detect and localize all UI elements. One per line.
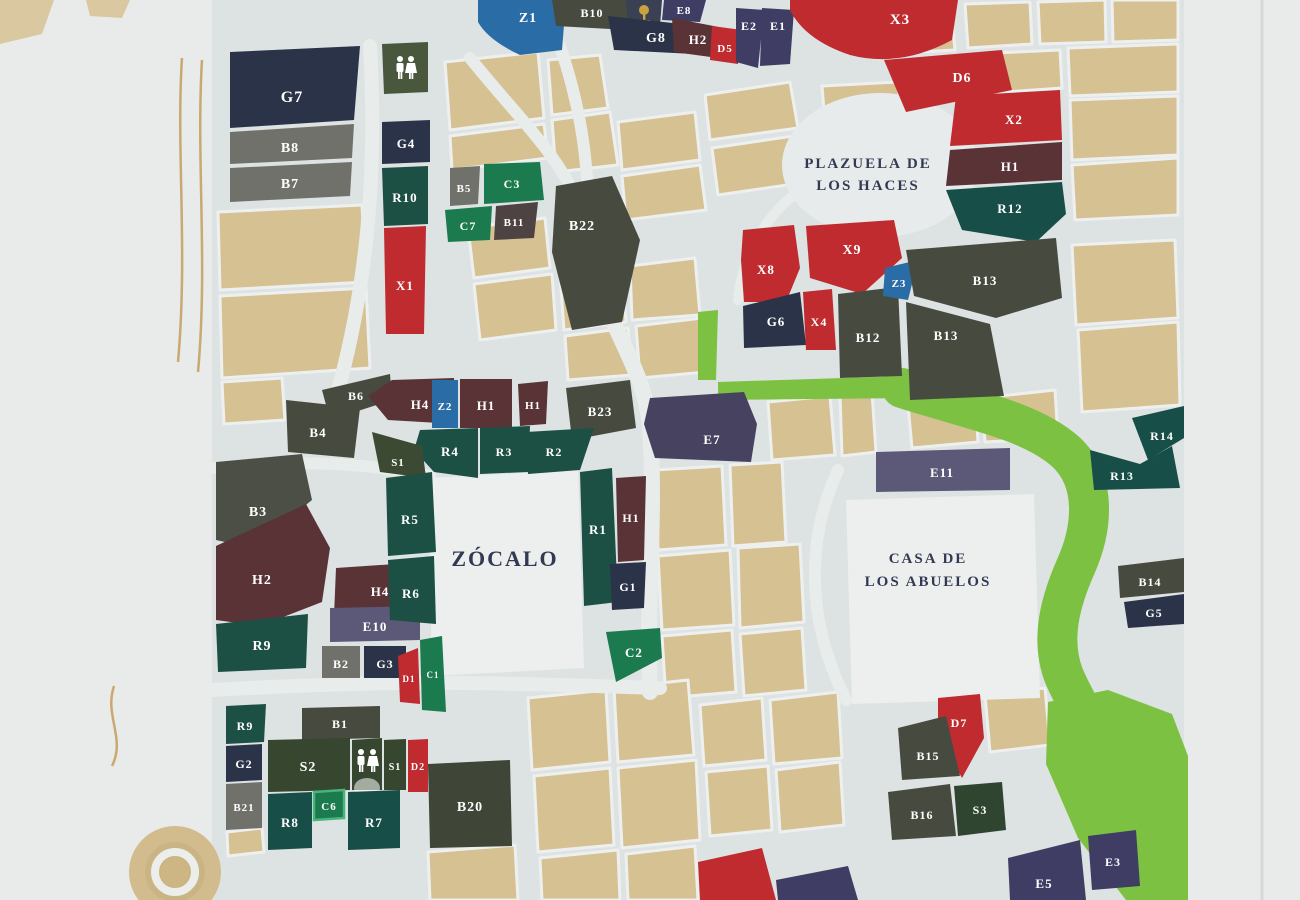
svg-text:H1: H1: [525, 400, 541, 412]
svg-text:B6: B6: [348, 389, 364, 403]
svg-text:E10: E10: [363, 619, 388, 634]
svg-text:Z3: Z3: [892, 278, 907, 290]
svg-text:D2: D2: [411, 762, 425, 773]
svg-text:LOS HACES: LOS HACES: [816, 178, 919, 194]
svg-text:B5: B5: [457, 183, 472, 195]
plot-map-poster: Z1 B10 E8 G8 H2 D5 E2 E1 X3 D6 X2 H1 R12…: [0, 0, 1300, 900]
parcel-G1: G1: [610, 562, 646, 610]
svg-text:H1: H1: [477, 398, 496, 413]
svg-text:C3: C3: [504, 177, 521, 191]
svg-text:X1: X1: [396, 278, 414, 293]
svg-text:R9: R9: [252, 639, 271, 654]
svg-text:E1: E1: [770, 19, 786, 33]
svg-text:B13: B13: [973, 273, 998, 288]
svg-text:S1: S1: [389, 762, 402, 773]
parcel-B21: B21: [226, 782, 262, 830]
svg-text:E5: E5: [1035, 876, 1052, 891]
svg-text:S2: S2: [300, 760, 317, 775]
parcel-S1-south: S1: [384, 739, 406, 790]
svg-text:G6: G6: [767, 314, 786, 329]
svg-text:R2: R2: [546, 445, 563, 459]
parcel-B11: B11: [494, 202, 538, 240]
parcel-E8: E8: [662, 0, 706, 22]
svg-text:E8: E8: [677, 5, 692, 17]
svg-text:R6: R6: [402, 586, 420, 601]
parcel-X1: X1: [384, 226, 426, 334]
parcel-R7: R7: [348, 790, 400, 850]
parcel-H1-mid: H1: [460, 379, 512, 428]
parcel-R9-south: R9: [226, 704, 266, 744]
parcel-H1-small: H1: [518, 381, 548, 426]
svg-text:E2: E2: [741, 19, 757, 33]
svg-text:G4: G4: [397, 136, 416, 151]
zocalo-label: ZÓCALO: [451, 546, 558, 571]
parcel-R9-west: R9: [216, 614, 308, 672]
svg-text:H4: H4: [411, 397, 430, 412]
parcel-E7: E7: [644, 392, 757, 462]
svg-text:B13: B13: [934, 328, 959, 343]
svg-text:D7: D7: [951, 716, 968, 730]
svg-text:B21: B21: [233, 802, 254, 814]
parcel-X4: X4: [803, 289, 836, 350]
svg-text:D1: D1: [403, 674, 416, 684]
svg-text:C7: C7: [460, 219, 477, 233]
svg-text:X3: X3: [890, 12, 910, 28]
parcel-G4: G4: [382, 120, 430, 164]
parcel-D1: D1: [398, 648, 420, 704]
svg-text:R13: R13: [1110, 469, 1134, 483]
casa-de-los-abuelos-building: [846, 494, 1040, 704]
svg-text:B14: B14: [1138, 575, 1161, 589]
parcel-B20: B20: [428, 760, 512, 848]
parcel-B2: B2: [322, 646, 360, 678]
parcel-C3: C3: [484, 162, 544, 204]
parcel-R6: R6: [388, 556, 436, 624]
restroom-block-north: [382, 42, 428, 94]
svg-text:H2: H2: [252, 573, 272, 588]
svg-text:S3: S3: [973, 803, 988, 817]
svg-text:R8: R8: [281, 815, 299, 830]
svg-text:LOS ABUELOS: LOS ABUELOS: [865, 574, 992, 590]
parcel-X2: X2: [950, 90, 1062, 146]
svg-text:R4: R4: [441, 444, 459, 459]
parcel-G2: G2: [226, 744, 262, 782]
svg-text:B2: B2: [333, 657, 349, 671]
svg-text:B1: B1: [332, 717, 348, 731]
svg-text:X2: X2: [1005, 112, 1023, 127]
svg-text:R5: R5: [401, 512, 419, 527]
svg-text:C6: C6: [321, 801, 336, 813]
svg-text:Z1: Z1: [519, 11, 537, 26]
svg-text:S1: S1: [391, 457, 405, 469]
svg-text:R3: R3: [496, 445, 513, 459]
svg-text:R1: R1: [589, 522, 607, 537]
parcel-B12: B12: [838, 287, 902, 378]
svg-text:B20: B20: [457, 800, 483, 815]
parcel-E1: E1: [760, 8, 794, 66]
parcel-B4: B4: [286, 400, 360, 458]
parcel-E11: E11: [876, 448, 1010, 492]
svg-text:E3: E3: [1105, 855, 1121, 869]
parcel-B16: B16: [888, 784, 956, 840]
svg-text:E7: E7: [703, 432, 720, 447]
parcel-E3: E3: [1088, 830, 1140, 890]
svg-text:B22: B22: [569, 219, 595, 234]
parcel-C7: C7: [445, 206, 492, 242]
parcel-S3: S3: [954, 782, 1006, 836]
svg-text:CASA DE: CASA DE: [889, 551, 968, 567]
svg-text:G5: G5: [1145, 606, 1162, 620]
parcel-R8: R8: [268, 792, 312, 850]
parcel-H1-zocalo: H1: [616, 476, 646, 562]
svg-text:C1: C1: [427, 670, 440, 680]
svg-text:B15: B15: [916, 749, 939, 763]
svg-text:H4: H4: [371, 584, 390, 599]
svg-text:B16: B16: [910, 808, 933, 822]
svg-text:R7: R7: [365, 815, 383, 830]
svg-text:Z2: Z2: [438, 401, 453, 413]
svg-text:G2: G2: [235, 757, 252, 771]
parcel-C1: C1: [420, 636, 446, 712]
parcel-R10: R10: [382, 166, 428, 226]
svg-text:X9: X9: [842, 243, 861, 258]
svg-text:R9: R9: [237, 719, 254, 733]
svg-text:R10: R10: [392, 190, 417, 205]
svg-text:B3: B3: [249, 505, 267, 520]
parcel-R3: R3: [480, 426, 530, 474]
svg-text:G3: G3: [376, 657, 393, 671]
zocalo-plaza: [428, 470, 584, 676]
svg-text:R12: R12: [997, 201, 1022, 216]
svg-text:R14: R14: [1150, 429, 1174, 443]
parcel-S2: S2: [268, 738, 350, 792]
restroom-block-south: [352, 738, 382, 798]
svg-text:H1: H1: [1001, 159, 1020, 174]
svg-text:B8: B8: [281, 141, 299, 156]
parcel-B1: B1: [302, 706, 380, 740]
svg-text:H2: H2: [689, 32, 708, 47]
svg-text:X4: X4: [811, 315, 828, 329]
svg-text:H1: H1: [622, 511, 639, 525]
svg-text:D6: D6: [952, 71, 971, 86]
svg-text:PLAZUELA DE: PLAZUELA DE: [804, 156, 931, 172]
svg-text:G1: G1: [619, 580, 636, 594]
parcel-R5: R5: [386, 472, 436, 556]
svg-text:C2: C2: [625, 645, 643, 660]
parcel-B5: B5: [450, 166, 480, 206]
svg-text:D5: D5: [717, 43, 732, 55]
svg-text:E11: E11: [930, 465, 954, 480]
parcel-G7: G7: [230, 46, 360, 128]
svg-text:X8: X8: [757, 262, 775, 277]
svg-text:B11: B11: [504, 217, 525, 229]
svg-text:B7: B7: [281, 177, 299, 192]
map-canvas: Z1 B10 E8 G8 H2 D5 E2 E1 X3 D6 X2 H1 R12…: [0, 0, 1300, 900]
svg-text:G8: G8: [646, 31, 666, 46]
parcel-Z2: Z2: [432, 380, 458, 428]
svg-text:B12: B12: [856, 330, 881, 345]
svg-text:B23: B23: [588, 404, 613, 419]
parcel-C6: C6: [314, 790, 344, 820]
svg-text:B4: B4: [309, 425, 326, 440]
svg-text:B10: B10: [580, 6, 603, 20]
parcel-D2: D2: [408, 739, 428, 792]
parcel-B7: B7: [230, 162, 352, 202]
svg-text:G7: G7: [281, 89, 303, 106]
